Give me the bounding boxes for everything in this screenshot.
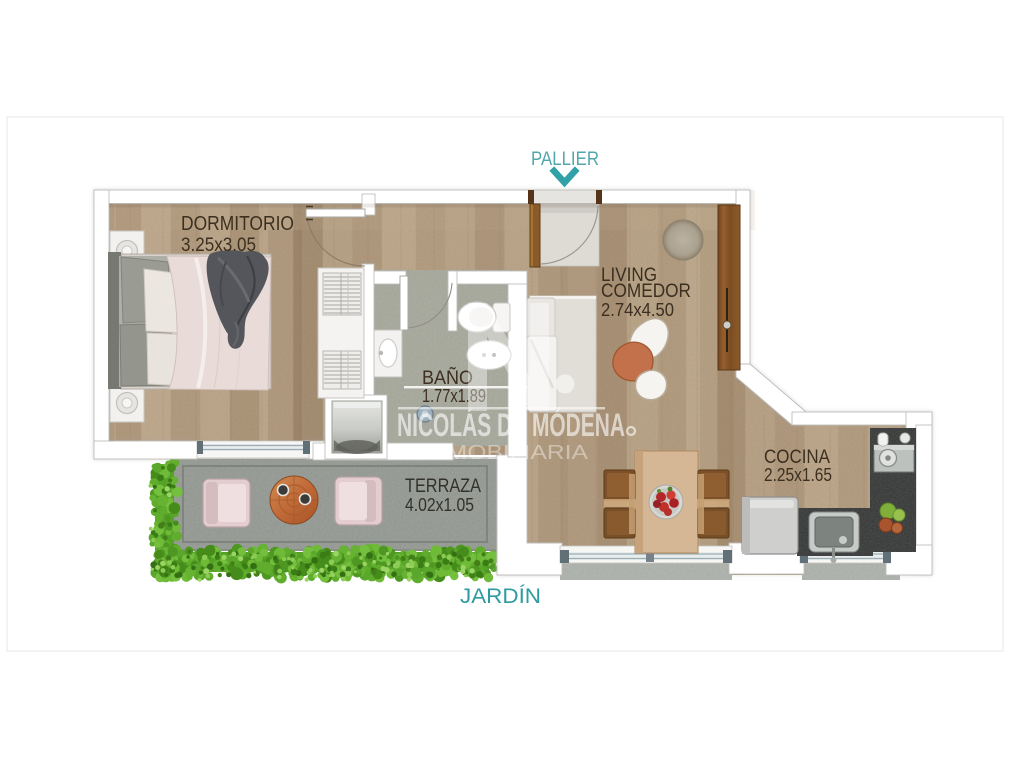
svg-text:4.02x1.05: 4.02x1.05 xyxy=(405,495,474,515)
svg-text:INMOBILIARIA: INMOBILIARIA xyxy=(422,442,589,464)
svg-text:2.74x4.50: 2.74x4.50 xyxy=(601,300,674,320)
svg-text:TERRAZA: TERRAZA xyxy=(405,476,481,497)
svg-text:2.25x1.65: 2.25x1.65 xyxy=(764,465,832,485)
svg-text:DORMITORIO: DORMITORIO xyxy=(181,213,294,235)
svg-text:3.25x3.05: 3.25x3.05 xyxy=(181,235,256,256)
svg-text:PALLIER: PALLIER xyxy=(531,149,599,170)
svg-text:COMEDOR: COMEDOR xyxy=(601,281,691,302)
svg-text:JARDÍN: JARDÍN xyxy=(460,585,541,608)
svg-text:NICOLÁS DE MÓDENA: NICOLÁS DE MÓDENA xyxy=(397,407,625,443)
